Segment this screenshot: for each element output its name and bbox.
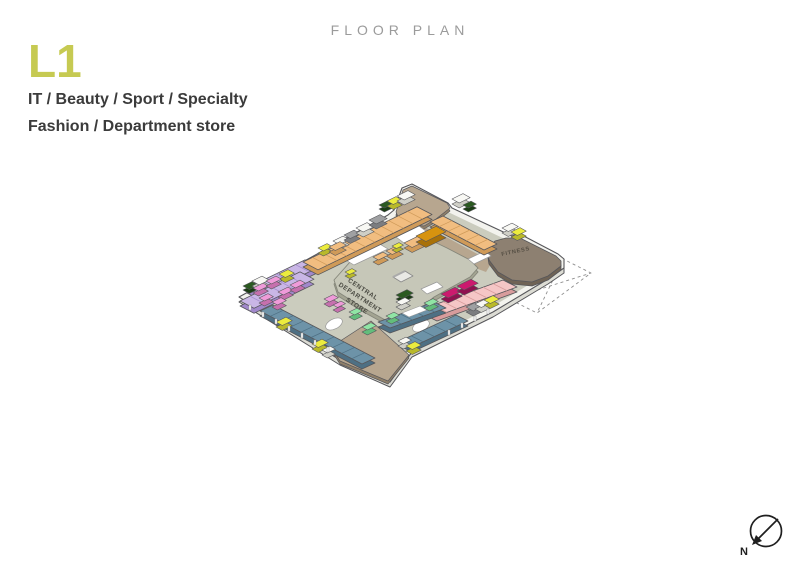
column-tick <box>314 340 316 345</box>
column-tick <box>448 330 450 335</box>
compass-north-label: N <box>740 546 748 558</box>
plan-geometry <box>239 184 591 387</box>
column-tick <box>474 316 476 321</box>
column-tick <box>487 309 489 314</box>
column-tick <box>327 347 329 352</box>
compass-icon: N <box>740 516 781 559</box>
column-tick <box>275 319 277 324</box>
column-tick <box>301 333 303 338</box>
column-tick <box>262 312 264 317</box>
column-tick <box>249 305 251 310</box>
column-tick <box>288 326 290 331</box>
column-tick <box>461 323 463 328</box>
floor-plan-page: FLOOR PLAN L1 IT / Beauty / Sport / Spec… <box>0 0 800 566</box>
floor-plan-drawing: CENTRAL DEPARTMENT STORE FITNESS N <box>0 0 800 566</box>
